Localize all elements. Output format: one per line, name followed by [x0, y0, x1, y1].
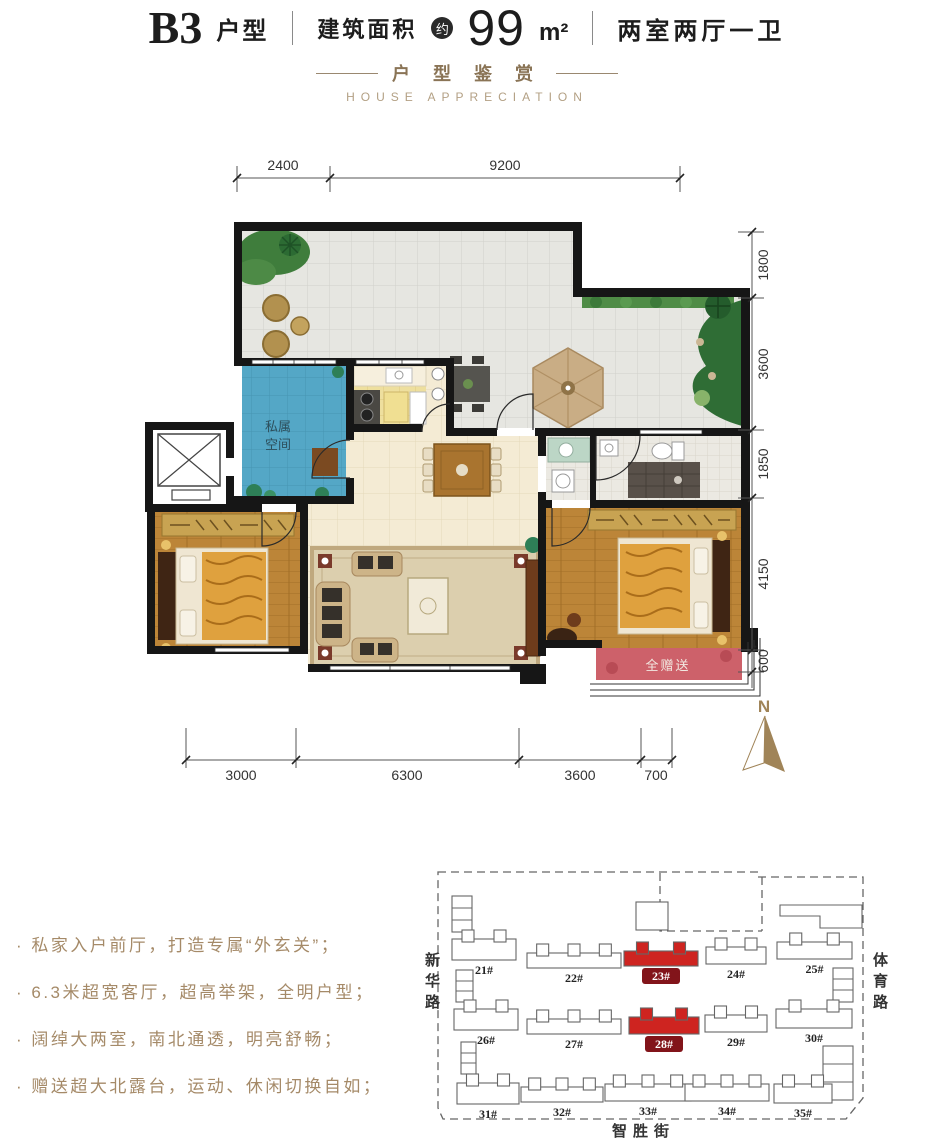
site-building-27: 27#	[527, 1010, 621, 1051]
site-building-label: 31#	[479, 1107, 497, 1121]
street-label-bottom: 智胜街	[612, 1120, 675, 1141]
site-building-label: 27#	[565, 1037, 583, 1051]
site-building-label: 29#	[727, 1035, 745, 1049]
dim-value: 3600	[564, 767, 595, 783]
site-building-33: 33#	[605, 1075, 691, 1118]
site-building-label: 22#	[565, 971, 583, 985]
dim-value: 1850	[755, 448, 771, 479]
dim-value: 6300	[391, 767, 422, 783]
floor-plan: 私属 空间 全赠送	[145, 222, 760, 696]
street-label-left: 新华路	[421, 952, 442, 1015]
site-building-label: 25#	[806, 962, 824, 976]
dim-value: 9200	[489, 157, 520, 173]
site-building-label: 34#	[718, 1104, 736, 1118]
site-building-30: 30#	[776, 1000, 852, 1045]
dim-value: 4150	[755, 558, 771, 589]
site-building-23: 23#	[624, 942, 698, 984]
site-building-34: 34#	[685, 1075, 769, 1118]
dining-set	[423, 444, 501, 496]
street-label-right: 体育路	[869, 952, 890, 1015]
site-building-35: 35#	[774, 1075, 832, 1120]
kitchen-counter	[354, 366, 426, 426]
feature-item: · 阔绰大两室，南北通透，明亮舒畅；	[16, 1016, 436, 1063]
site-building-label: 32#	[553, 1105, 571, 1119]
site-building-31: 31#	[457, 1074, 519, 1121]
site-building-label: 35#	[794, 1106, 812, 1120]
site-building-22: 22#	[527, 944, 621, 985]
living-room-set	[312, 537, 541, 666]
feature-item: · 6.3米超宽客厅，超高举架，全明户型；	[16, 969, 436, 1016]
site-building-29: 29#	[705, 1006, 767, 1049]
bay-deco	[606, 662, 618, 674]
dim-value: 700	[644, 767, 668, 783]
foyer-label-line1: 私属	[265, 419, 291, 434]
site-buildings: 21#22#23#24#25#26#27#28#29#30#31#32#33#3…	[452, 930, 852, 1121]
dim-top: 2400 9200	[233, 157, 684, 192]
site-building-28: 28#	[629, 1008, 699, 1052]
site-building-label: 21#	[475, 963, 493, 977]
site-building-label: 26#	[477, 1033, 495, 1047]
bay-deco	[720, 650, 732, 662]
dim-value: 2400	[267, 157, 298, 173]
dim-value: 3000	[225, 767, 256, 783]
dim-value: 1800	[755, 249, 771, 280]
feature-item: · 赠送超大北露台，运动、休闲切换自如；	[16, 1063, 436, 1110]
site-building-label: 33#	[639, 1104, 657, 1118]
elevator	[158, 434, 220, 500]
site-building-label: 28#	[655, 1037, 673, 1051]
north-arrow-icon: N	[743, 697, 785, 772]
site-building-label: 30#	[805, 1031, 823, 1045]
site-plan: 21#22#23#24#25#26#27#28#29#30#31#32#33#3…	[438, 872, 863, 1121]
site-structures	[452, 896, 862, 1100]
foyer-label-line2: 空间	[265, 437, 291, 452]
site-building-label: 24#	[727, 967, 745, 981]
flyer-page: B3 户型 建筑面积 约 99 m² 两室两厅一卫 户 型 鉴 赏 HOUSE …	[0, 0, 934, 1147]
feature-item: · 私家入户前厅，打造专属“外玄关”；	[16, 922, 436, 969]
feature-list: · 私家入户前厅，打造专属“外玄关”； · 6.3米超宽客厅，超高举架，全明户型…	[16, 922, 436, 1110]
north-label: N	[758, 697, 770, 716]
foyer-grid	[242, 366, 346, 504]
site-building-24: 24#	[706, 938, 766, 981]
dim-value: 600	[755, 649, 771, 673]
dim-bottom: 3000 6300 3600 700	[182, 728, 676, 783]
bay-window-label: 全赠送	[645, 658, 690, 673]
site-building-26: 26#	[454, 1000, 518, 1047]
dim-value: 3600	[755, 348, 771, 379]
site-building-label: 23#	[652, 969, 670, 983]
site-building-32: 32#	[521, 1078, 603, 1119]
